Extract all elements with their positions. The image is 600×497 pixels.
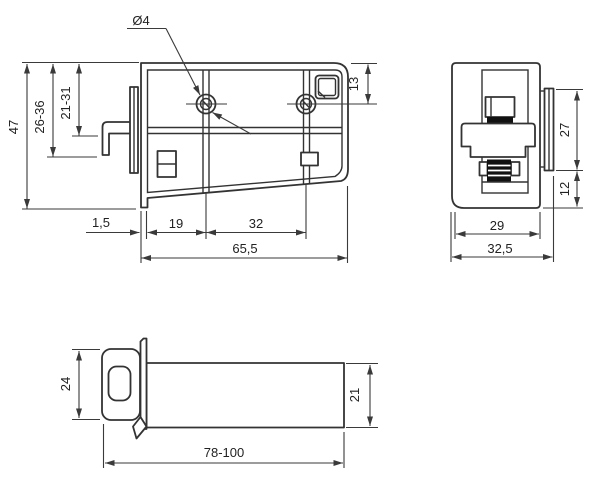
dim-hole-diameter: Ø4 xyxy=(132,13,149,28)
dim-body-depth: 29 xyxy=(490,218,504,233)
side-plunger xyxy=(486,97,515,117)
side-latch-plate xyxy=(540,89,554,171)
side-view xyxy=(452,63,554,208)
dim-panel-gap: 1,5 xyxy=(92,215,110,230)
dim-plate-bottom-offset: 12 xyxy=(557,182,572,196)
side-cam xyxy=(462,124,536,158)
dim-hole-spacing: 32 xyxy=(249,216,263,231)
spring-upper-band xyxy=(487,117,513,124)
dim-hook-reach-min: 21-31 xyxy=(58,86,73,119)
adjuster-window xyxy=(158,151,177,177)
bottom-flange xyxy=(141,339,147,430)
strike-hook xyxy=(103,122,132,155)
bottom-knob xyxy=(102,349,140,420)
dim-hook-reach-max: 26-36 xyxy=(32,100,47,133)
drawing-canvas: Ø4 47 26-36 21-31 13 1,5 19 32 65,5 xyxy=(0,0,600,497)
technical-drawing: Ø4 47 26-36 21-31 13 1,5 19 32 65,5 xyxy=(0,0,600,497)
dim-knob-width: 24 xyxy=(58,377,73,391)
front-view xyxy=(103,63,378,208)
dim-housing-width: 21 xyxy=(347,388,362,402)
dim-hole-top-offset: 13 xyxy=(346,77,361,91)
dim-total-height: 47 xyxy=(6,120,21,134)
dim-adjustable-length: 78-100 xyxy=(204,445,244,460)
knob-recess xyxy=(109,367,131,401)
dim-body-length: 65,5 xyxy=(232,241,257,256)
bottom-housing xyxy=(147,363,345,428)
dim-first-hole-offset: 19 xyxy=(169,216,183,231)
corner-cutout xyxy=(316,76,339,99)
dim-plate-height: 27 xyxy=(557,123,572,137)
dim-overall-depth: 32,5 xyxy=(487,241,512,256)
lower-clip-detail xyxy=(301,153,318,166)
bottom-view xyxy=(102,339,344,439)
